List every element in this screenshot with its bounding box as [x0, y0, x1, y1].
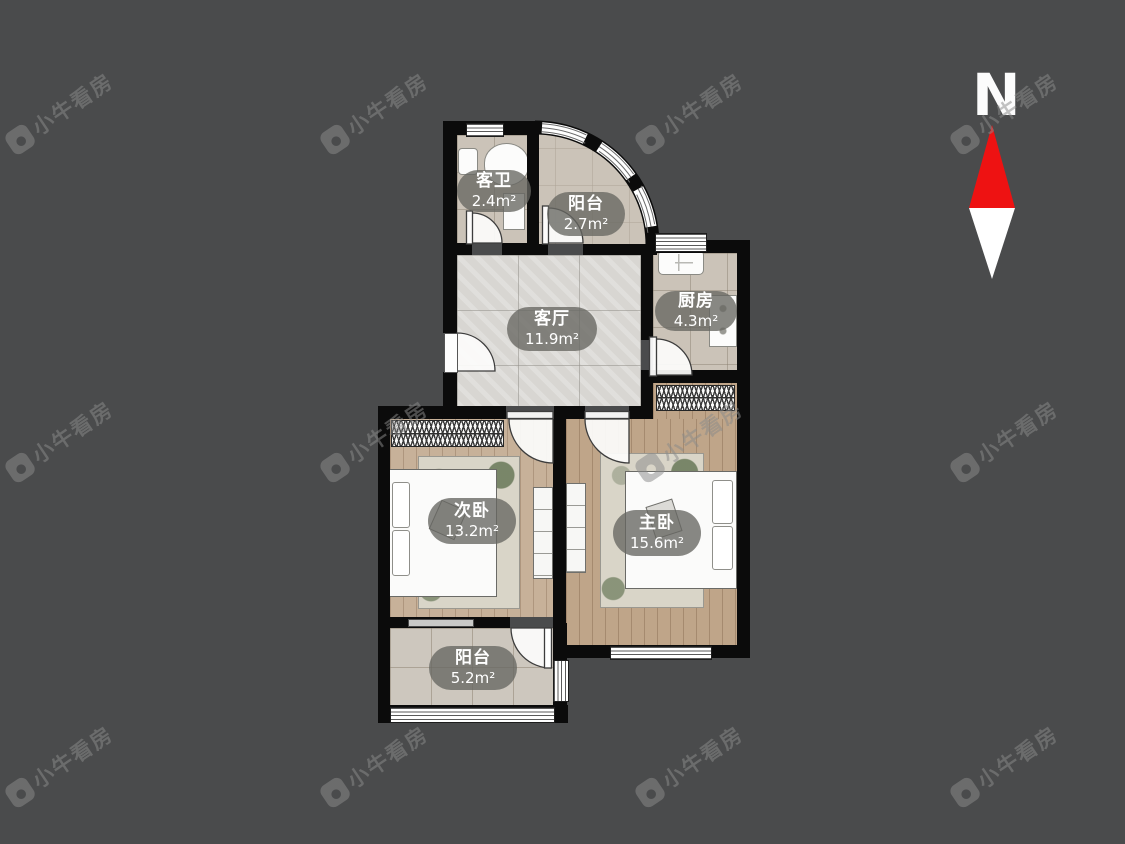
compass-north-label: N — [972, 66, 1021, 124]
room-label-living-room: 客厅 11.9m² — [507, 307, 597, 351]
watermark-logo-icon — [2, 775, 37, 810]
watermark-logo-icon — [317, 450, 352, 485]
window — [390, 707, 555, 723]
door-kitchen — [656, 339, 692, 375]
watermark: 小牛看房 — [1, 718, 119, 811]
room-label-balcony-bottom: 阳台 5.2m² — [429, 646, 517, 690]
door-leaf — [507, 412, 553, 419]
watermark: 小牛看房 — [946, 393, 1064, 486]
window — [466, 123, 504, 137]
floorplan-canvas: 客卫 2.4m² 阳台 2.7m² 客厅 11.9m² 厨房 4.3m² 次卧 … — [0, 0, 1125, 844]
compass-arrow-icon — [966, 120, 1018, 282]
door-guest-bathroom — [472, 213, 502, 243]
watermark: 小牛看房 — [946, 718, 1064, 811]
window-sill — [408, 619, 474, 627]
watermark-logo-icon — [632, 775, 667, 810]
entry-door-threshold — [444, 333, 458, 373]
door-leaf — [467, 211, 473, 244]
room-label-master-bedroom: 主卧 15.6m² — [613, 510, 701, 556]
watermark-logo-icon — [2, 122, 37, 157]
window — [610, 646, 712, 660]
door-swings — [457, 206, 692, 668]
room-label-balcony-top: 阳台 2.7m² — [547, 192, 625, 236]
watermark-logo-icon — [317, 775, 352, 810]
watermark: 小牛看房 — [1, 65, 119, 158]
door-secondary-bedroom — [509, 419, 553, 463]
room-label-guest-bathroom: 客卫 2.4m² — [457, 170, 531, 212]
room-label-kitchen: 厨房 4.3m² — [655, 291, 737, 331]
door-entry — [457, 333, 495, 371]
watermark-logo-icon — [2, 450, 37, 485]
watermark-logo-icon — [947, 450, 982, 485]
watermark-logo-icon — [947, 775, 982, 810]
door-leaf — [545, 628, 552, 668]
room-label-secondary-bedroom: 次卧 13.2m² — [428, 498, 516, 544]
door-leaf — [585, 412, 629, 419]
watermark: 小牛看房 — [1, 393, 119, 486]
door-leaf — [650, 337, 657, 376]
window — [655, 233, 707, 252]
door-master-bedroom — [585, 419, 629, 463]
window — [553, 660, 569, 702]
watermark-logo-icon — [317, 122, 352, 157]
